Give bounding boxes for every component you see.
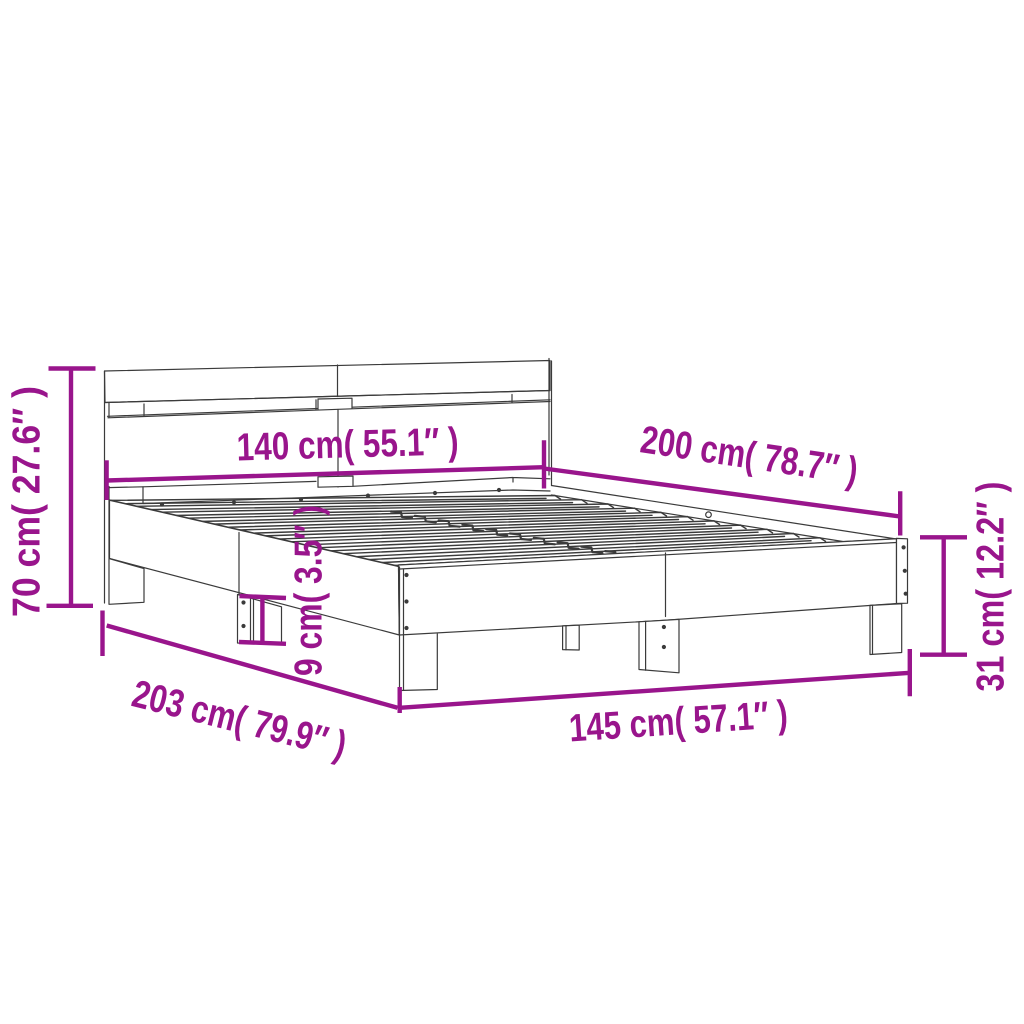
- svg-text:140 cm( 55.1″ ): 140 cm( 55.1″ ): [236, 420, 459, 469]
- svg-text:70 cm( 27.6″ ): 70 cm( 27.6″ ): [6, 386, 49, 617]
- svg-text:31 cm( 12.2″ ): 31 cm( 12.2″ ): [969, 482, 1012, 692]
- svg-text:9 cm( 3.5″ ): 9 cm( 3.5″ ): [288, 505, 331, 676]
